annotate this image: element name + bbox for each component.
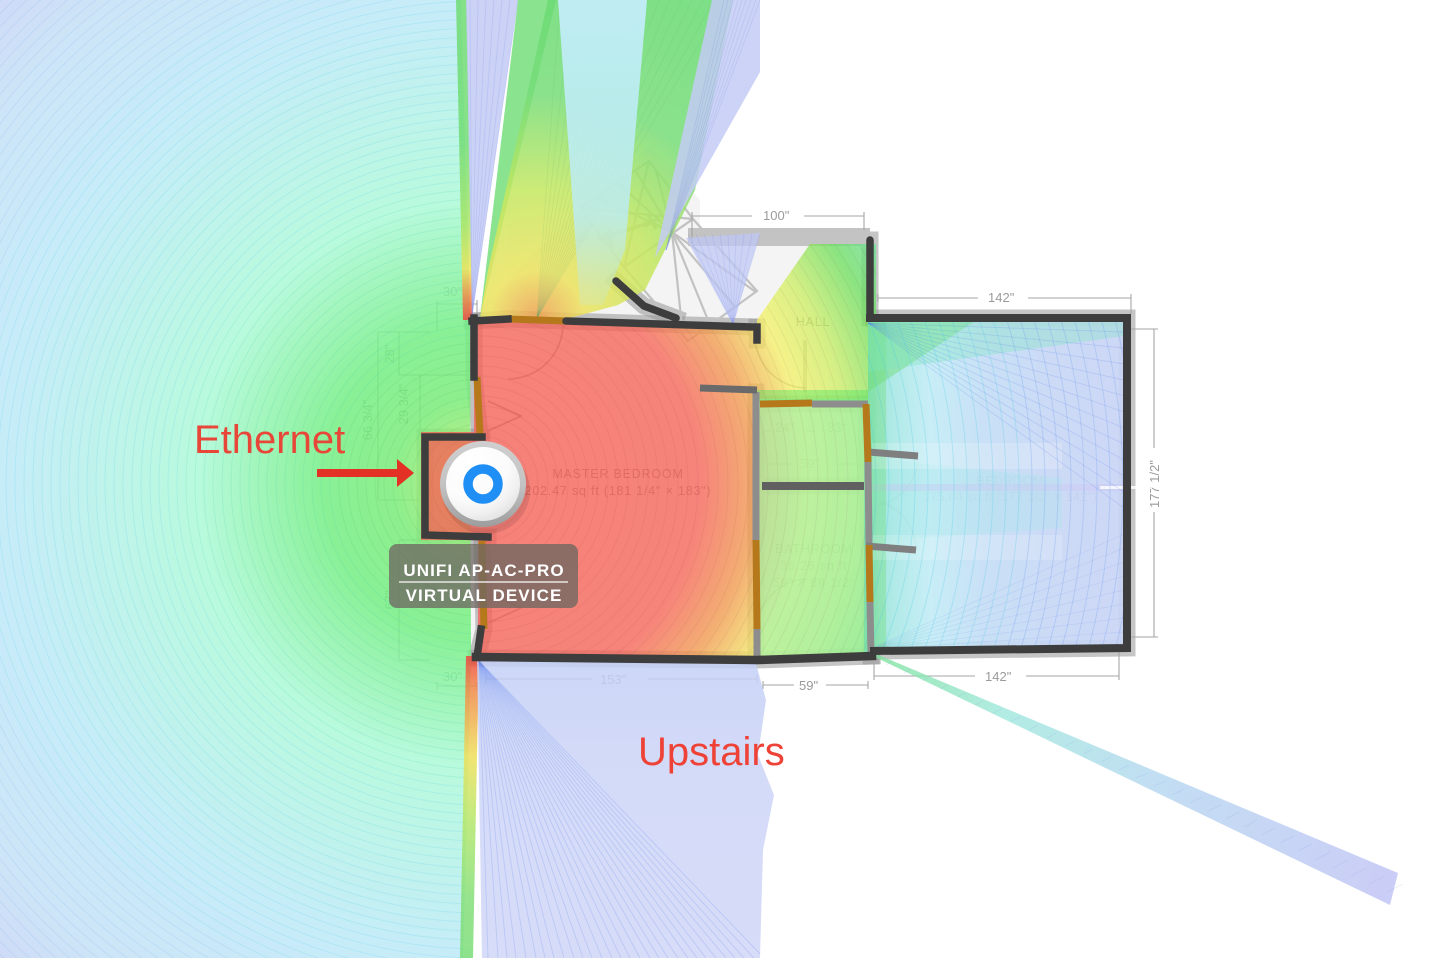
svg-text:Ethernet: Ethernet — [194, 418, 345, 462]
svg-text:VIRTUAL DEVICE: VIRTUAL DEVICE — [406, 586, 563, 605]
svg-text:100": 100" — [763, 208, 790, 223]
svg-text:Upstairs: Upstairs — [638, 730, 785, 774]
svg-text:59": 59" — [799, 678, 818, 693]
svg-text:UNIFI AP-AC-PRO: UNIFI AP-AC-PRO — [403, 561, 564, 580]
svg-text:142": 142" — [988, 290, 1015, 305]
svg-text:142": 142" — [985, 669, 1012, 684]
svg-text:177 1/2": 177 1/2" — [1147, 460, 1162, 508]
